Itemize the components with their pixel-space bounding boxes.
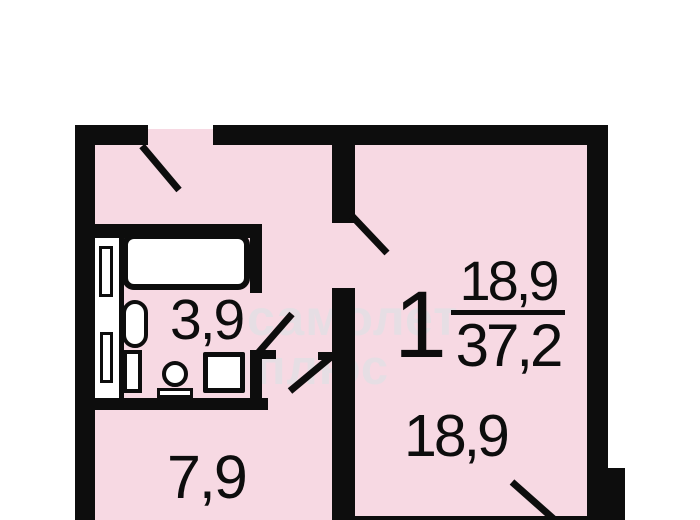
wall-right-pilaster bbox=[587, 468, 625, 520]
entrance-opening bbox=[146, 129, 213, 147]
total-area-value: 37,2 bbox=[447, 319, 569, 373]
wall-bathroom-right-upper bbox=[250, 224, 262, 293]
wall-top-left bbox=[75, 125, 148, 145]
wall-right bbox=[587, 125, 608, 468]
wall-top-right bbox=[213, 125, 608, 145]
wall-bathroom-door-stub bbox=[250, 350, 276, 359]
wall-shaft-divider bbox=[119, 238, 124, 398]
toilet-icon bbox=[122, 300, 148, 348]
duct-shaft-icon bbox=[99, 246, 113, 297]
wall-kitchen-top bbox=[75, 398, 268, 410]
apartment-number: 1 bbox=[394, 278, 447, 373]
sink-pedestal-icon bbox=[157, 388, 193, 398]
kitchen-area-label: 7,9 bbox=[167, 447, 246, 508]
wall-partition-lower bbox=[332, 288, 355, 520]
wall-bottom-sliver bbox=[353, 516, 587, 520]
floor-plan: самолет плюс 3,9 7,9 18,9 1 18,9 37,2 bbox=[0, 0, 700, 520]
sink-icon bbox=[162, 361, 188, 387]
toilet-tank-icon bbox=[123, 350, 142, 393]
washing-machine-icon bbox=[203, 352, 245, 393]
duct-shaft-icon bbox=[100, 332, 113, 383]
room-area-label: 18,9 bbox=[404, 407, 507, 466]
wall-left bbox=[75, 125, 95, 520]
wall-partition-upper bbox=[332, 145, 355, 223]
wall-kitchen-door-stub bbox=[318, 352, 332, 360]
bathroom-area-label: 3,9 bbox=[170, 292, 243, 349]
bathtub-icon bbox=[122, 233, 250, 290]
wall-bathroom-top bbox=[75, 224, 262, 238]
total-area-fraction: 18,9 37,2 bbox=[447, 255, 569, 373]
living-area-value: 18,9 bbox=[447, 255, 569, 307]
